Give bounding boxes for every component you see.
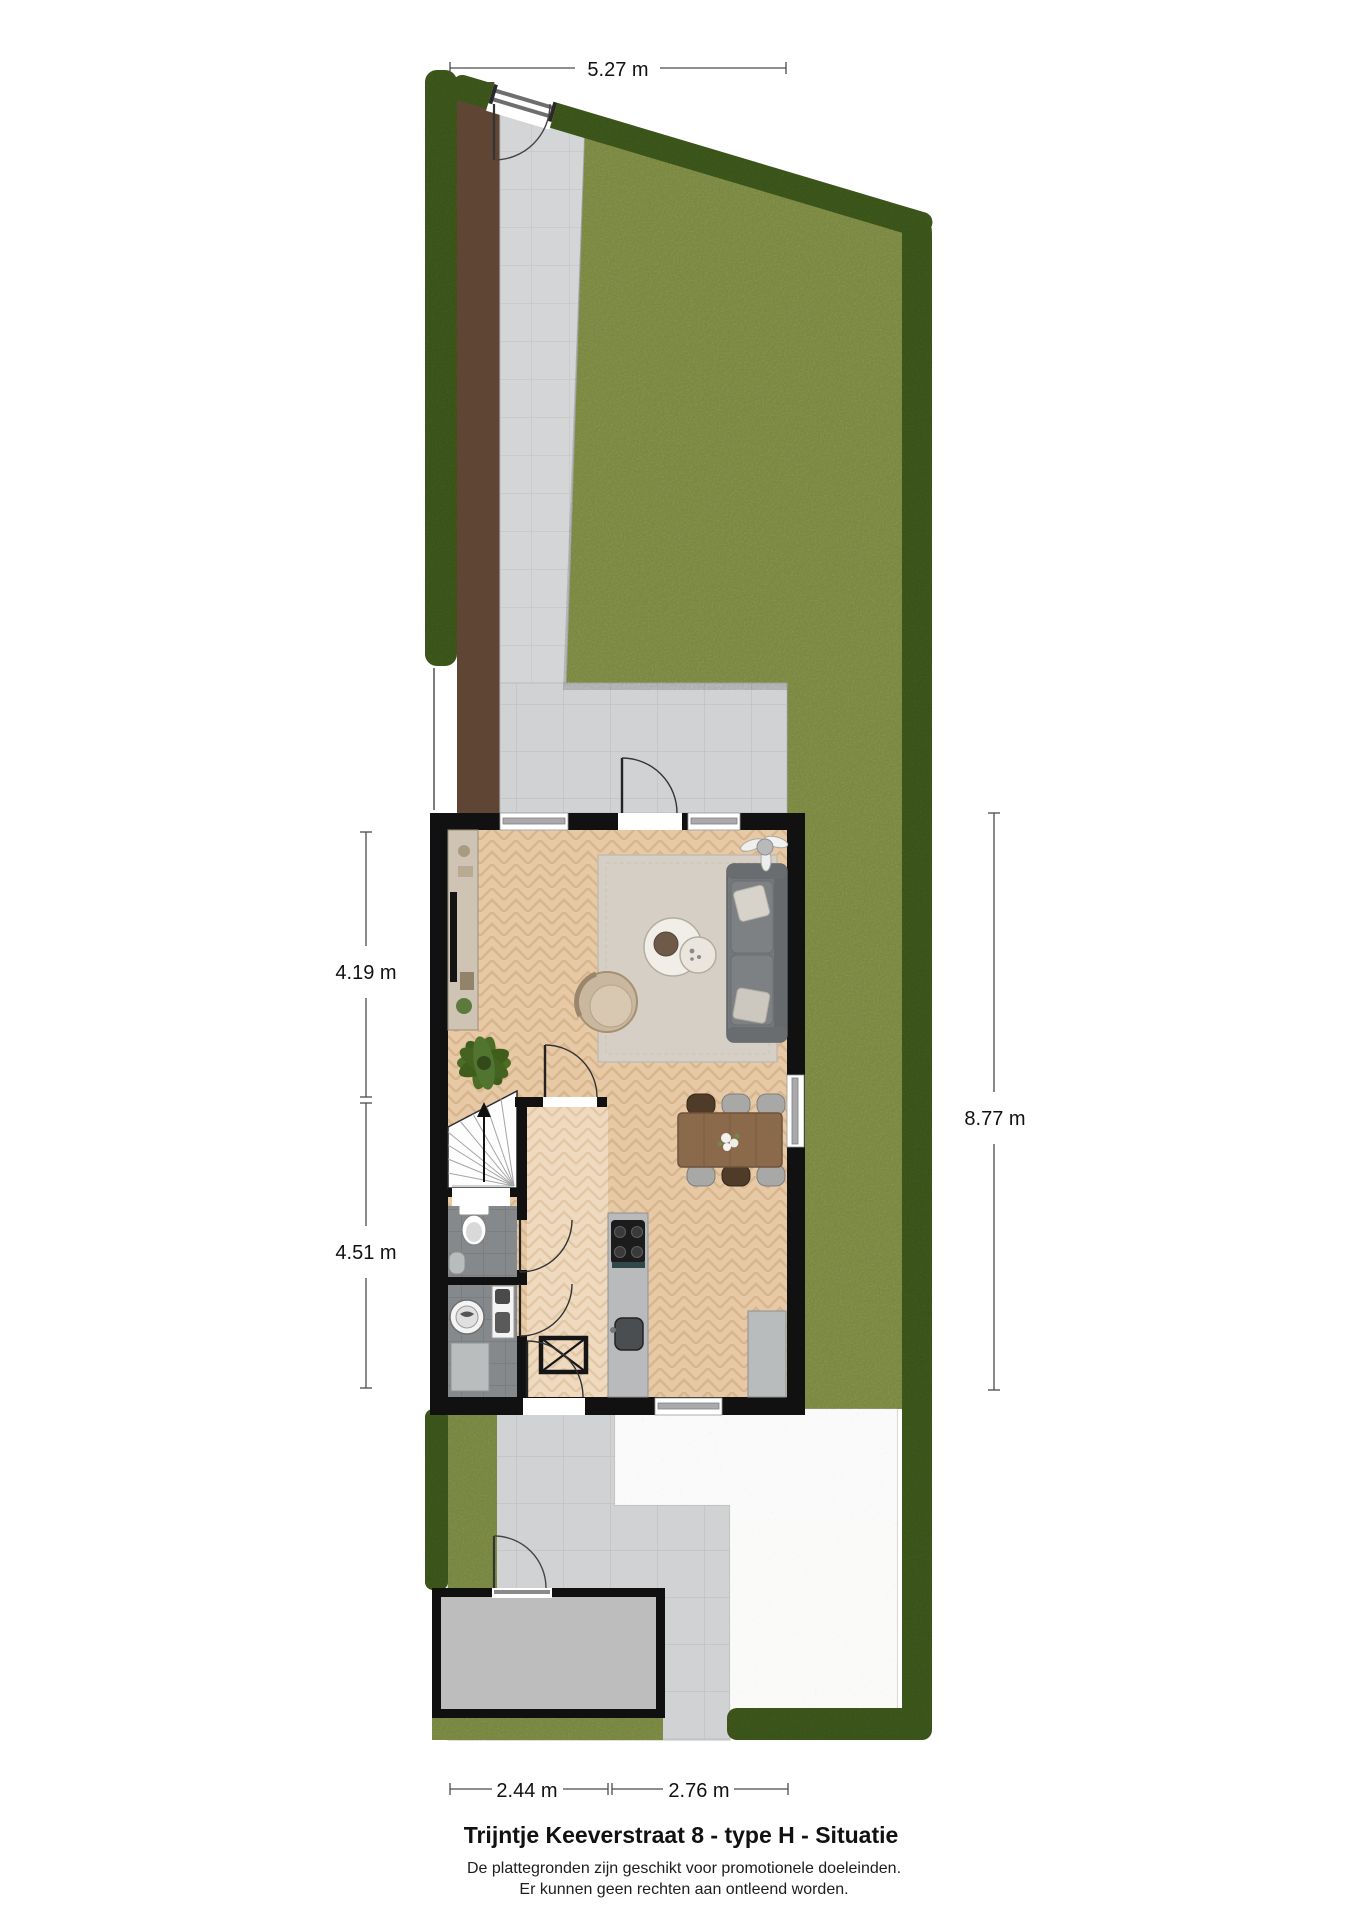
house [430,758,805,1415]
pillow [732,987,770,1023]
front-door-opening [618,813,682,830]
plan-title: Trijntje Keeverstraat 8 - type H - Situa… [464,1822,899,1848]
shed-floor [441,1597,656,1709]
kitchen-sink [615,1318,643,1350]
hand-basin [449,1252,465,1274]
soil-border [457,82,500,813]
disclaimer-line-1: De plattegronden zijn geschikt voor prom… [467,1860,901,1877]
floorplan-page: 5.27 m 4.19 m 4.51 m 8.77 m 2.44 m 2.76 … [0,0,1358,1920]
dim-top: 5.27 m [587,59,648,81]
dining-chair [722,1094,750,1115]
dim-left-lower: 4.51 m [335,1242,396,1264]
back-door-opening [523,1398,585,1415]
dining-chair [687,1165,715,1186]
disclaimer-line-2: Er kunnen geen rechten aan ontleend word… [519,1881,848,1898]
armchair [577,972,637,1032]
dim-left-upper: 4.19 m [335,962,396,984]
front-paving [500,683,787,813]
situation-plan: 5.27 m 4.19 m 4.51 m 8.77 m 2.44 m 2.76 … [0,0,1358,1920]
cabinet-plant [456,998,472,1014]
dim-bottom-right: 2.76 m [668,1780,729,1802]
dining-chair [687,1094,715,1115]
toilet-room [448,1203,517,1277]
tv [450,892,457,982]
dining-chair [757,1165,785,1186]
side-counter [748,1311,786,1397]
dining-chair [722,1165,750,1186]
sofa [727,864,787,1042]
footer: Trijntje Keeverstraat 8 - type H - Situa… [464,1822,901,1898]
dining-set [678,1094,785,1186]
utility-room [448,1285,517,1397]
tv-cabinet [448,830,478,1030]
pillow [733,885,771,923]
toilet-opening [452,1188,510,1206]
bowl [654,932,678,956]
faucet [610,1327,616,1333]
dining-chair [757,1094,785,1115]
cooktop [611,1220,645,1264]
dim-right: 8.77 m [964,1108,1025,1130]
utility-cabinet [451,1343,489,1391]
dim-bottom-left: 2.44 m [496,1780,557,1802]
